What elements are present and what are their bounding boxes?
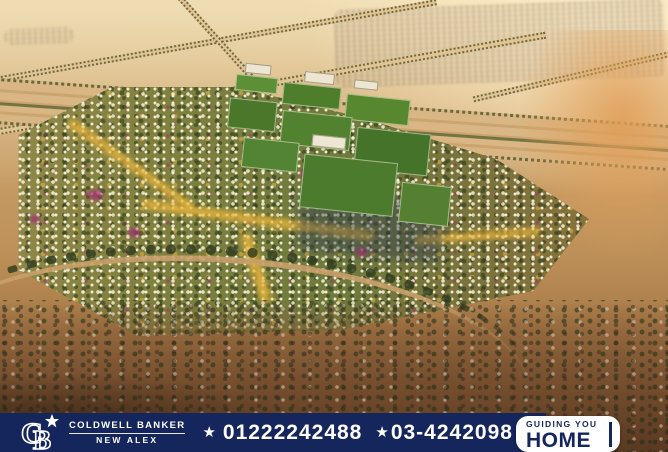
- phone-number: 03-4242098: [391, 422, 513, 443]
- clubhouse-building: [354, 79, 379, 90]
- sports-pitch: [227, 97, 278, 132]
- tagline-cursor-bar: [609, 422, 612, 447]
- phone-number: 01222242488: [223, 422, 362, 443]
- sports-pitch: [398, 182, 452, 227]
- flowering-trees: [356, 248, 367, 256]
- tagline-main: HOME: [526, 430, 606, 451]
- flowering-trees: [88, 190, 103, 200]
- guiding-you-home-badge: GUIDING YOU HOME: [516, 416, 620, 452]
- sports-pitch: [282, 82, 342, 110]
- cb-letter-b: B: [33, 425, 51, 452]
- aerial-masterplan-render: [0, 0, 668, 452]
- phone-secondary: ★ 03-4242098: [375, 422, 513, 443]
- star-icon: ★: [202, 425, 215, 440]
- info-banner: C B COLDWELL BANKER NEW ALEX ★ 012222424…: [0, 413, 546, 452]
- coldwell-banker-cb-monogram: C B: [20, 414, 60, 452]
- clubhouse-building: [304, 71, 335, 85]
- listing-image: C B COLDWELL BANKER NEW ALEX ★ 012222424…: [0, 0, 668, 452]
- flowering-trees: [30, 215, 40, 223]
- sports-pitch: [235, 74, 278, 94]
- star-icon: ★: [375, 425, 388, 440]
- distant-city-small: [4, 27, 75, 45]
- sports-pitch: [241, 137, 300, 173]
- sports-fields: [211, 73, 466, 249]
- brand-name-block: COLDWELL BANKER NEW ALEX: [69, 421, 185, 445]
- flowering-trees: [128, 228, 140, 237]
- brand-office: NEW ALEX: [69, 436, 185, 445]
- sports-pitch: [299, 153, 398, 217]
- brand-name: COLDWELL BANKER: [69, 421, 185, 431]
- phone-primary: ★ 01222242488: [202, 422, 362, 443]
- brand-divider: [69, 433, 185, 434]
- tagline-top: GUIDING YOU: [526, 420, 606, 429]
- sports-pitch: [344, 94, 410, 127]
